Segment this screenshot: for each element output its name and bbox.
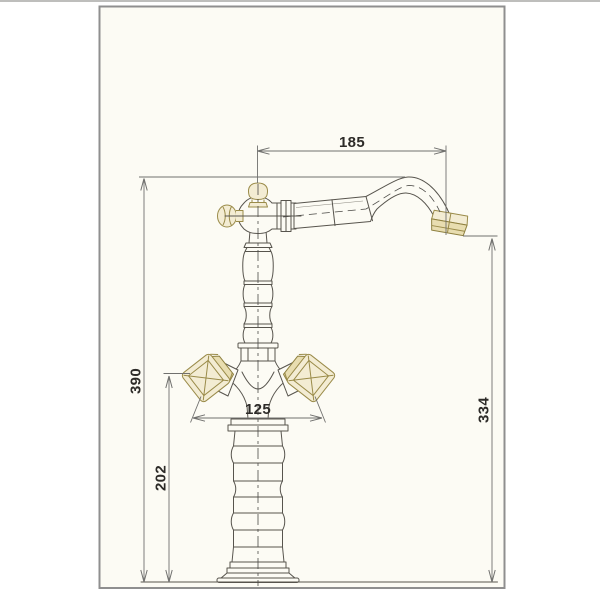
screenshot-root: 185 390 202 125 334 — [0, 0, 600, 600]
drawing-frame — [100, 7, 505, 589]
faucet-dimension-drawing: 185 390 202 125 334 — [0, 0, 600, 600]
dim-label-handle-span: 125 — [245, 401, 271, 418]
dim-label-reach: 185 — [339, 134, 365, 151]
dim-label-overall-height: 390 — [128, 368, 145, 394]
dim-label-lower-height: 202 — [153, 465, 170, 491]
dim-label-outlet-height: 334 — [476, 397, 493, 423]
